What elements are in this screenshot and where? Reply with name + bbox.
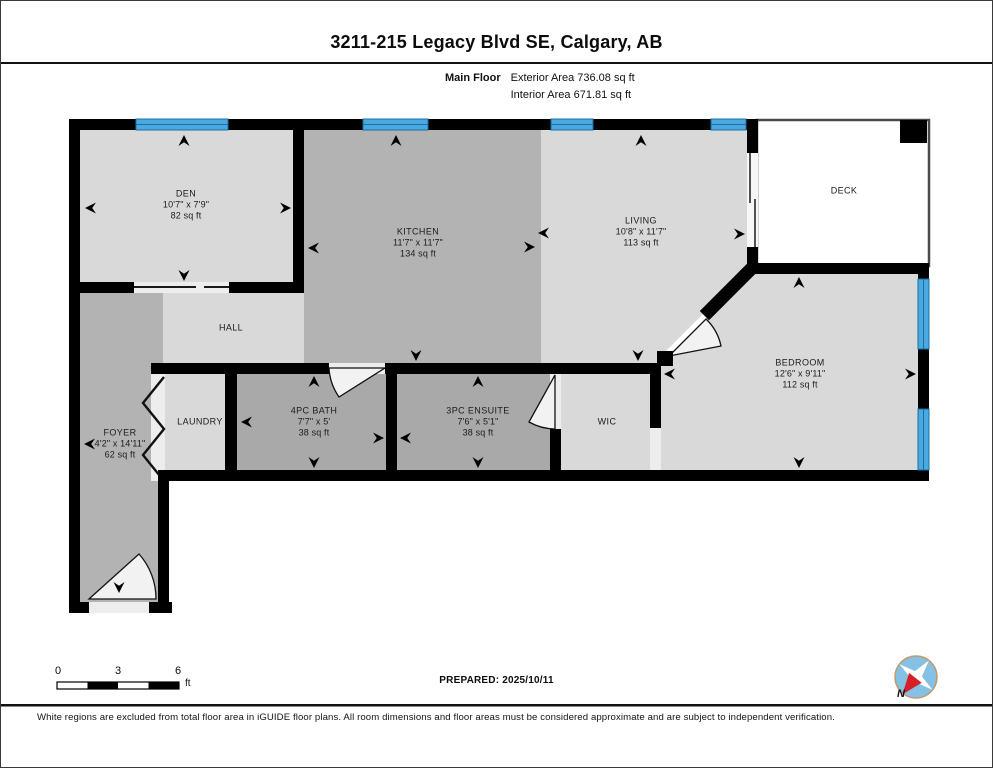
- room-label-deck: DECK: [831, 186, 858, 197]
- deck-pillar: [900, 120, 927, 143]
- header-divider: [1, 62, 993, 64]
- wall: [293, 119, 304, 293]
- wall: [918, 263, 929, 279]
- area-lines: Exterior Area 736.08 sq ft Interior Area…: [511, 70, 635, 104]
- wall: [151, 363, 329, 374]
- room-label-hall: HALL: [219, 323, 243, 334]
- floor-label: Main Floor: [445, 70, 501, 104]
- wall: [69, 282, 134, 293]
- room-label-bedroom: BEDROOM 12'6" x 9'11" 112 sq ft: [775, 358, 826, 391]
- floorplan-drawing: [1, 1, 993, 768]
- patio-door-opening: [747, 153, 758, 247]
- room-label-foyer: FOYER 4'2" x 14'11" 62 sq ft: [95, 428, 146, 461]
- wall: [225, 363, 237, 481]
- interior-area: Interior Area 671.81 sq ft: [511, 87, 635, 104]
- room-label-ensuite: 3PC ENSUITE 7'6" x 5'1" 38 sq ft: [446, 406, 509, 439]
- wic-opening: [650, 428, 661, 470]
- wall: [428, 119, 551, 130]
- wall: [158, 470, 169, 613]
- wall: [550, 429, 561, 481]
- room-label-wic: WIC: [598, 417, 617, 428]
- wall: [69, 119, 80, 613]
- room-label-kitchen: KITCHEN 11'7" x 11'7" 134 sq ft: [393, 227, 443, 260]
- wall: [657, 351, 673, 366]
- exterior-area: Exterior Area 736.08 sq ft: [511, 70, 635, 87]
- wall: [918, 349, 929, 409]
- wall: [69, 602, 89, 613]
- wall: [747, 119, 758, 153]
- room-label-den: DEN 10'7" x 7'9" 82 sq ft: [163, 189, 209, 222]
- floor-summary: Main Floor Exterior Area 736.08 sq ft In…: [445, 70, 635, 104]
- room-label-bath: 4PC BATH 7'7" x 5' 38 sq ft: [291, 406, 338, 439]
- wall: [385, 363, 661, 374]
- footer-divider: [1, 704, 993, 707]
- wall: [158, 470, 929, 481]
- compass-north-label: N: [897, 688, 905, 700]
- wall: [386, 363, 397, 481]
- room-label-laundry: LAUNDRY: [177, 417, 223, 428]
- wall: [593, 119, 711, 130]
- entry-door-opening: [89, 602, 149, 613]
- wall: [229, 282, 304, 293]
- prepared-date: PREPARED: 2025/10/11: [1, 675, 992, 686]
- page-title: 3211-215 Legacy Blvd SE, Calgary, AB: [1, 32, 992, 53]
- wall: [650, 363, 661, 428]
- wall: [747, 263, 929, 274]
- floorplan-page: 3211-215 Legacy Blvd SE, Calgary, AB Mai…: [0, 0, 993, 768]
- room-label-living: LIVING 10'8" x 11'7" 113 sq ft: [616, 216, 667, 249]
- disclaimer-text: White regions are excluded from total fl…: [37, 712, 972, 723]
